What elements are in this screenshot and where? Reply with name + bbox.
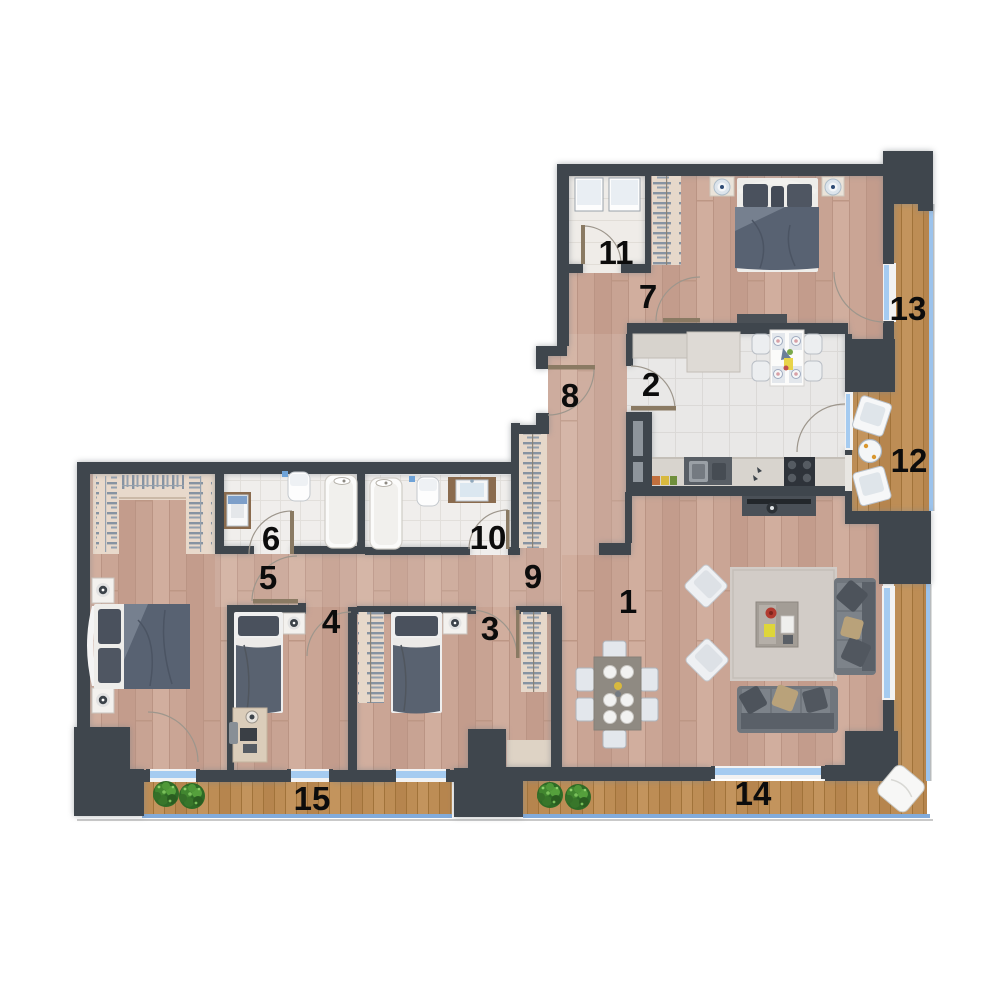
svg-text:14: 14 <box>735 775 772 812</box>
svg-text:2: 2 <box>642 366 660 403</box>
svg-text:6: 6 <box>262 520 280 557</box>
svg-text:5: 5 <box>259 559 277 596</box>
svg-text:13: 13 <box>890 290 927 327</box>
svg-text:7: 7 <box>639 278 657 315</box>
svg-text:12: 12 <box>891 442 928 479</box>
svg-text:15: 15 <box>294 780 331 817</box>
svg-text:9: 9 <box>524 558 542 595</box>
svg-text:3: 3 <box>481 610 499 647</box>
svg-text:4: 4 <box>322 603 341 640</box>
svg-text:10: 10 <box>470 519 507 556</box>
svg-text:1: 1 <box>619 583 637 620</box>
svg-text:11: 11 <box>599 234 634 271</box>
svg-text:8: 8 <box>561 377 579 414</box>
